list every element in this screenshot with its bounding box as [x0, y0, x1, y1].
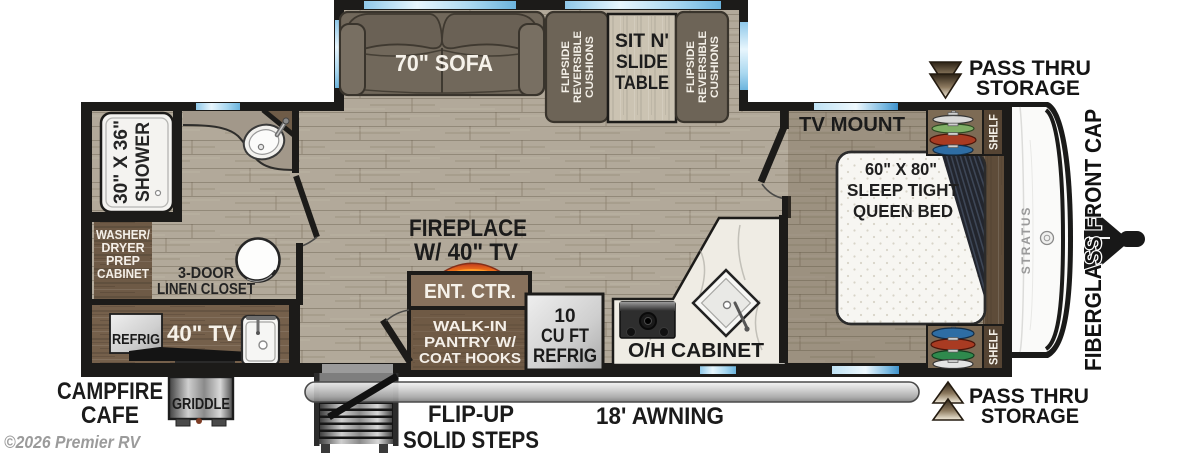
svg-text:SOLID STEPS: SOLID STEPS [403, 427, 539, 453]
svg-text:WASHER/: WASHER/ [96, 228, 150, 242]
svg-text:TABLE: TABLE [615, 73, 669, 94]
svg-text:FIBERGLASS FRONT CAP: FIBERGLASS FRONT CAP [1080, 109, 1106, 371]
svg-text:LINEN CLOSET: LINEN CLOSET [157, 281, 255, 298]
svg-text:REVERSIBLE: REVERSIBLE [697, 31, 709, 103]
svg-text:SHELF: SHELF [989, 114, 1001, 150]
svg-text:FLIP-UP: FLIP-UP [428, 401, 514, 428]
svg-text:REVERSIBLE: REVERSIBLE [572, 31, 584, 103]
svg-text:DRYER: DRYER [101, 241, 144, 255]
svg-text:3-DOOR: 3-DOOR [178, 265, 234, 282]
svg-text:GRIDDLE: GRIDDLE [172, 396, 230, 413]
svg-text:STORAGE: STORAGE [976, 77, 1080, 100]
svg-text:FIREPLACE: FIREPLACE [409, 215, 527, 242]
svg-text:STORAGE: STORAGE [981, 405, 1079, 428]
svg-text:30" X 36": 30" X 36" [111, 120, 132, 204]
svg-text:W/ 40" TV: W/ 40" TV [414, 239, 518, 266]
svg-text:STRATUS: STRATUS [1019, 206, 1033, 274]
svg-text:COAT HOOKS: COAT HOOKS [419, 350, 521, 367]
svg-text:O/H CABINET: O/H CABINET [628, 340, 764, 362]
svg-text:SLEEP TIGHT: SLEEP TIGHT [847, 180, 959, 200]
svg-text:QUEEN BED: QUEEN BED [853, 201, 953, 221]
svg-text:CAMPFIRE: CAMPFIRE [57, 378, 163, 405]
svg-text:CAFE: CAFE [81, 402, 139, 429]
svg-text:WALK-IN: WALK-IN [433, 318, 507, 335]
svg-text:FLIPSIDE: FLIPSIDE [560, 41, 572, 93]
svg-text:PANTRY W/: PANTRY W/ [424, 334, 517, 351]
svg-text:CABINET: CABINET [97, 267, 149, 281]
svg-text:REFRIG: REFRIG [533, 346, 597, 367]
svg-text:PREP: PREP [106, 254, 140, 268]
svg-text:40" TV: 40" TV [167, 321, 237, 346]
svg-text:SHELF: SHELF [989, 329, 1001, 365]
svg-text:10: 10 [554, 306, 575, 327]
svg-text:REFRIG: REFRIG [112, 332, 160, 348]
svg-text:ENT. CTR.: ENT. CTR. [424, 281, 516, 303]
svg-text:SLIDE: SLIDE [616, 52, 668, 73]
svg-text:FLIPSIDE: FLIPSIDE [685, 41, 697, 93]
svg-text:SHOWER: SHOWER [133, 122, 154, 202]
svg-text:CUSHIONS: CUSHIONS [709, 36, 721, 98]
svg-text:CUSHIONS: CUSHIONS [584, 36, 596, 98]
svg-text:TV MOUNT: TV MOUNT [799, 114, 905, 136]
svg-text:©2026 Premier RV: ©2026 Premier RV [4, 432, 141, 452]
svg-text:SIT N': SIT N' [615, 31, 669, 52]
svg-text:60" X 80": 60" X 80" [865, 159, 937, 179]
svg-text:70" SOFA: 70" SOFA [395, 50, 493, 76]
svg-text:CU FT: CU FT [541, 326, 589, 347]
svg-text:18' AWNING: 18' AWNING [596, 403, 724, 430]
